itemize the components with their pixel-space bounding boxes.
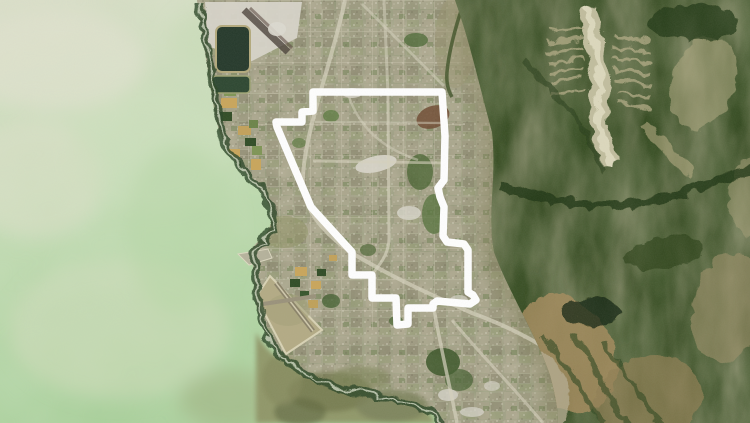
satellite-map [0,0,750,423]
image-grain [0,0,750,423]
satellite-map-canvas [0,0,750,423]
